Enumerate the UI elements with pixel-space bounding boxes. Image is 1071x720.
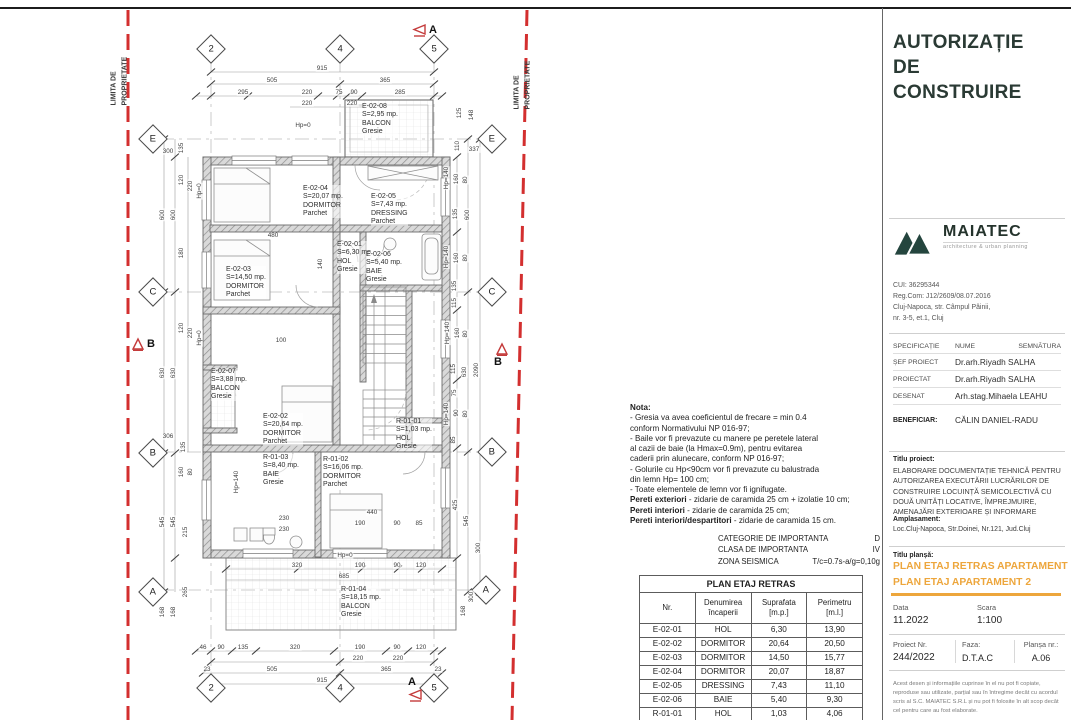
dimension-text: 168 [160, 606, 166, 619]
room-name: DORMITOR [303, 202, 343, 210]
importance-key: CATEGORIE DE IMPORTANTA [718, 533, 828, 544]
room-name: BALCON [341, 603, 381, 611]
room-id: R-01-02 [323, 456, 363, 464]
col-header-nr: Nr. [640, 593, 696, 624]
dimension-text: 220 [392, 656, 405, 662]
divider [889, 670, 1065, 671]
room-area: S=2,95 mp. [362, 111, 398, 119]
faza-value: D.T.A.C [962, 653, 1014, 663]
data-value: 11.2022 [893, 615, 977, 626]
cell-suprafata: 7,43 [751, 680, 807, 694]
titlu-proiect-text: ELABORARE DOCUMENTAȚIE TEHNICĂ PENTRU AU… [893, 466, 1061, 517]
room-finish: Gresie [263, 479, 299, 487]
wall-spec-line: Pereti interiori/despartitori - zidarie … [630, 516, 880, 526]
notes-title: Nota: [630, 403, 880, 413]
importance-value: D [874, 533, 880, 544]
property-line-label-left: LIMITA DE PROPRIETATE [110, 44, 131, 106]
dimension-text: 425 [453, 499, 459, 512]
table-row: E-02-05 DRESSING 7,43 11,10 [640, 680, 863, 694]
dimension-text: 2090 [474, 362, 480, 378]
dimension-text: 135 [237, 645, 250, 651]
permit-title: AUTORIZAȚIE DE CONSTRUIRE [893, 30, 1061, 105]
room-id: R-01-03 [263, 454, 299, 462]
dimension-text: 90 [392, 645, 401, 651]
grid-marker-label: E [150, 134, 156, 145]
room-id: R-01-04 [341, 586, 381, 594]
room-area: S=20,07 mp. [303, 193, 343, 201]
maiatec-logo-icon [893, 224, 935, 256]
section-arrow-icon [412, 23, 427, 37]
dimension-text: 545 [464, 515, 470, 528]
dimension-text: 90 [216, 645, 225, 651]
cell-suprafata: 20,07 [751, 666, 807, 680]
dimension-text: 160 [179, 466, 185, 479]
dimension-text: 85 [451, 435, 457, 444]
dimension-text: Hp=0 [294, 123, 311, 129]
dimension-text: Hp=140 [444, 245, 450, 269]
room-id: E-02-07 [211, 368, 247, 376]
cell-nr: E-02-03 [640, 652, 696, 666]
dimension-text: 545 [160, 516, 166, 529]
grid-marker-label: B [150, 448, 156, 459]
grid-marker-label: 2 [208, 682, 213, 693]
grid-marker-label: A [483, 585, 489, 596]
room-label: E-02-02 S=20,64 mp. DORMITOR Parchet [263, 413, 303, 446]
room-name: HOL [396, 435, 432, 443]
amplasament-label: Amplasament: [893, 516, 1061, 523]
section-arrow-icon [130, 337, 145, 351]
dimension-text: 100 [275, 338, 288, 344]
section-marker-b-right: B [494, 342, 509, 368]
dimension-text: 190 [354, 645, 367, 651]
dimension-text: 120 [179, 174, 185, 187]
dimension-text: 505 [266, 667, 279, 673]
room-area: S=3,88 mp. [211, 376, 247, 384]
room-name: DORMITOR [323, 473, 363, 481]
company-info: CUI: 36295344 Reg.Com: J12/2609/08.07.20… [893, 280, 1061, 324]
dimension-text: 365 [379, 78, 392, 84]
dimension-text: 630 [171, 367, 177, 380]
dimension-text: 168 [461, 605, 467, 618]
dimension-text: Hp=0 [197, 182, 203, 199]
proiect-label: Proiect Nr. [893, 640, 955, 649]
company-address-1: Cluj-Napoca, str. Câmpul Pâinii, [893, 302, 1061, 313]
cell-denumire: DORMITOR [695, 666, 751, 680]
spec-header-specificatie: SPECIFICAȚIE [893, 343, 955, 350]
wall-spec-line: Pereti interiori - zidarie de caramida 2… [630, 506, 880, 516]
room-finish: Gresie [396, 443, 432, 451]
dimension-text: 75 [334, 90, 343, 96]
room-id: E-02-03 [226, 266, 266, 274]
project-info-row: Proiect Nr. 244/2022 Faza: D.T.A.C Planș… [893, 640, 1061, 663]
dimension-text: 300 [476, 542, 482, 555]
table-row: E-02-01 HOL 6,30 13,90 [640, 624, 863, 638]
cell-suprafata: 1,03 [751, 708, 807, 720]
dimension-text: 685 [338, 574, 351, 580]
dimension-text: 285 [394, 90, 407, 96]
room-area: S=14,50 mp. [226, 274, 266, 282]
room-label: R-01-04 S=18,15 mp. BALCON Gresie [341, 586, 381, 619]
room-name: DRESSING [371, 210, 408, 218]
room-id: E-02-05 [371, 193, 408, 201]
drawing-sheet: LIMITA DE PROPRIETATE LIMITA DE PROPRIET… [0, 0, 1071, 720]
logo-tagline: architecture & urban planning [943, 242, 1028, 250]
dimension-text: 80 [188, 467, 194, 476]
note-line: - Golurile cu Hp<90cm vor fi prevazute c… [630, 465, 880, 475]
dimension-text: 90 [349, 90, 358, 96]
spec-table: SPECIFICAȚIE NUME SEMNĂTURA ȘEF PROIECT … [893, 340, 1061, 425]
plansa-nr-value: A.06 [1021, 653, 1061, 663]
dimension-text: 630 [462, 366, 468, 379]
company-address-2: nr. 3-5, et.1, Cluj [893, 313, 1061, 324]
section-arrow-icon [494, 342, 509, 356]
dimension-text: 125 [457, 107, 463, 120]
note-line: al cazii de baie (la Hmax=0.9m), pentru … [630, 444, 880, 454]
cell-nr: E-02-06 [640, 694, 696, 708]
table-row: E-02-06 BAIE 5,40 9,30 [640, 694, 863, 708]
room-finish: Parchet [263, 438, 303, 446]
dimension-text: 80 [463, 253, 469, 262]
dimension-text: 160 [454, 252, 460, 265]
dimension-text: 190 [354, 563, 367, 569]
note-line: caderii prin alunecare, conform NP 016-9… [630, 454, 880, 464]
dimension-text: 220 [301, 90, 314, 96]
importance-block: CATEGORIE DE IMPORTANTA D CLASA DE IMPOR… [718, 533, 880, 567]
divider [889, 634, 1065, 635]
spec-header-semnatura: SEMNĂTURA [1018, 343, 1061, 350]
room-name: DORMITOR [226, 283, 266, 291]
room-finish: Parchet [323, 481, 363, 489]
spec-row-sef-proiect: ȘEF PROIECT Dr.arh.Riyadh SALHA [893, 354, 1061, 371]
room-finish: Gresie [341, 611, 381, 619]
note-line: conform Normativului NP 016-97; [630, 424, 880, 434]
note-line: - Toate elementele de lemn vor fi ignifu… [630, 485, 880, 495]
cell-perimetru: 4,06 [807, 708, 863, 720]
beneficiar-row: BENEFICIAR: CĂLIN DANIEL-RADU [893, 405, 1061, 425]
room-id: E-02-01 [337, 241, 373, 249]
room-area: S=5,40 mp. [366, 259, 402, 267]
dimension-text: 300 [469, 591, 475, 604]
dimension-text: Hp=140 [444, 166, 450, 190]
dimension-text: 220 [301, 101, 314, 107]
cell-perimetru: 9,30 [807, 694, 863, 708]
table-row: R-01-01 HOL 1,03 4,06 [640, 708, 863, 720]
cell-denumire: HOL [695, 624, 751, 638]
grid-marker-label: 5 [431, 43, 436, 54]
dimension-text: 306 [162, 434, 175, 440]
dimension-text: 90 [392, 521, 401, 527]
dimension-text: 230 [278, 527, 291, 533]
dimension-text: 440 [366, 510, 379, 516]
dimension-text: 365 [380, 667, 393, 673]
dimension-text: 90 [392, 563, 401, 569]
beneficiar-label: BENEFICIAR: [893, 417, 955, 424]
dimension-text: 135 [179, 142, 185, 155]
dimension-text: 320 [291, 563, 304, 569]
plansa-title-1: PLAN ETAJ RETRAS APARTAMENT 1 [893, 561, 1061, 572]
divider [889, 218, 1065, 219]
spec-role: PROIECTAT [893, 376, 955, 383]
importance-row: CATEGORIE DE IMPORTANTA D [718, 533, 880, 544]
section-letter: B [494, 356, 502, 368]
cell-nr: E-02-04 [640, 666, 696, 680]
dimension-text: 135 [181, 441, 187, 454]
dimension-text: 148 [469, 109, 475, 122]
room-finish: Gresie [211, 393, 247, 401]
date-scale-row: Data 11.2022 Scara 1:100 [893, 603, 1061, 626]
room-label: E-02-08 S=2,95 mp. BALCON Gresie [362, 103, 398, 136]
dimension-text: 80 [463, 409, 469, 418]
room-label: R-01-01 S=1,03 mp. HOL Gresie [396, 418, 432, 451]
room-id: E-02-04 [303, 185, 343, 193]
dimension-text: Hp=140 [234, 470, 240, 494]
dimension-text: 600 [465, 209, 471, 222]
cell-perimetru: 11,10 [807, 680, 863, 694]
dimension-text: 630 [160, 367, 166, 380]
dimension-text: 135 [452, 280, 458, 293]
section-arrow-icon [408, 688, 423, 702]
dimension-text: 160 [454, 173, 460, 186]
dimension-text: 168 [171, 606, 177, 619]
divider [889, 451, 1065, 452]
wall-spec-detail: - zidarie de caramida 15 cm. [732, 516, 836, 525]
cell-suprafata: 6,30 [751, 624, 807, 638]
dimension-text: 140 [318, 258, 324, 271]
beneficiar-name: CĂLIN DANIEL-RADU [955, 415, 1038, 425]
importance-key: ZONA SEISMICA [718, 556, 779, 567]
note-line: din lemn Hp= 100 cm; [630, 475, 880, 485]
proiect-value: 244/2022 [893, 652, 955, 663]
wall-spec-line: Pereti exteriori - zidarie de caramida 2… [630, 495, 880, 505]
dimension-text: 230 [278, 516, 291, 522]
spec-role: DESENAT [893, 393, 955, 400]
grid-marker-label: B [489, 447, 495, 458]
dimension-text: 295 [237, 90, 250, 96]
dimension-text: 480 [267, 233, 280, 239]
col-header-perimetru: Perimetru [m.l.] [807, 593, 863, 624]
dimension-text: 220 [188, 180, 194, 193]
table-title: PLAN ETAJ RETRAS [640, 576, 863, 593]
cell-perimetru: 20,50 [807, 638, 863, 652]
room-area: S=1,03 mp. [396, 426, 432, 434]
dimension-text: 190 [354, 521, 367, 527]
dimension-text: 120 [179, 322, 185, 335]
cell-suprafata: 5,40 [751, 694, 807, 708]
room-area: S=20,64 mp. [263, 421, 303, 429]
copyright-disclaimer: Acest desen și informațiile cuprinse în … [893, 680, 1061, 716]
cell-perimetru: 15,77 [807, 652, 863, 666]
dimension-text: 75 [452, 388, 458, 397]
wall-spec-type: Pereti exteriori [630, 495, 687, 504]
dimension-text: Hp=140 [444, 402, 450, 426]
dimension-text: 215 [183, 526, 189, 539]
dimension-text: 265 [183, 586, 189, 599]
importance-row: ZONA SEISMICA T/c=0.7s-a/g=0,10g [718, 556, 880, 567]
spec-name: Arh.stag.Mihaela LEAHU [955, 391, 1047, 401]
grid-marker-label: 4 [337, 682, 342, 693]
dimension-text: 115 [452, 297, 458, 309]
cell-nr: E-02-02 [640, 638, 696, 652]
cell-perimetru: 13,90 [807, 624, 863, 638]
dimension-text: 600 [160, 209, 166, 222]
dimension-text: 115 [451, 363, 457, 375]
data-label: Data [893, 603, 977, 612]
importance-row: CLASA DE IMPORTANTA IV [718, 544, 880, 555]
room-id: E-02-08 [362, 103, 398, 111]
cell-nr: R-01-01 [640, 708, 696, 720]
room-finish: Gresie [362, 128, 398, 136]
room-finish: Parchet [303, 210, 343, 218]
room-id: R-01-01 [396, 418, 432, 426]
section-letter: B [147, 338, 155, 350]
room-id: E-02-06 [366, 251, 402, 259]
dimension-text: 23 [433, 667, 442, 673]
cell-denumire: DORMITOR [695, 638, 751, 652]
room-name: BAIE [263, 471, 299, 479]
note-line: - Gresia va avea coeficientul de frecare… [630, 413, 880, 423]
cell-nr: E-02-05 [640, 680, 696, 694]
table-row: E-02-03 DORMITOR 14,50 15,77 [640, 652, 863, 666]
room-schedule-table: PLAN ETAJ RETRAS Nr. Denumirea încaperii… [639, 575, 863, 720]
room-label: E-02-03 S=14,50 mp. DORMITOR Parchet [226, 266, 266, 299]
scara-value: 1:100 [977, 615, 1061, 626]
section-letter: A [429, 24, 437, 36]
faza-label: Faza: [962, 640, 1014, 649]
col-header-denumire: Denumirea încaperii [695, 593, 751, 624]
dimension-text: Hp=0 [336, 553, 353, 559]
plansa-title-2: PLAN ETAJ APARTAMENT 2 [893, 577, 1061, 588]
dimension-text: 80 [463, 329, 469, 338]
section-marker-a-top: A [412, 23, 437, 37]
importance-value: T/c=0.7s-a/g=0,10g [812, 556, 880, 567]
dimension-text: 300 [162, 149, 175, 155]
cell-denumire: DORMITOR [695, 652, 751, 666]
dimension-text: 337 [468, 147, 481, 153]
dimension-text: 135 [453, 208, 459, 221]
room-label: E-02-06 S=5,40 mp. BAIE Gresie [366, 251, 402, 284]
importance-key: CLASA DE IMPORTANTA [718, 544, 808, 555]
wall-specs: Pereti exteriori - zidarie de caramida 2… [630, 495, 880, 526]
room-area: S=16,06 mp. [323, 464, 363, 472]
dimension-text: Hp=0 [197, 329, 203, 346]
grid-marker-label: C [150, 287, 157, 298]
room-label: R-01-02 S=16,06 mp. DORMITOR Parchet [323, 456, 363, 489]
room-finish: Parchet [226, 291, 266, 299]
dimension-text: 220 [346, 101, 359, 107]
titlu-proiect-label: Titlu proiect: [893, 456, 1061, 463]
dimension-text: 600 [171, 209, 177, 222]
dimension-text: 120 [415, 563, 428, 569]
grid-marker-label: 4 [337, 43, 342, 54]
cell-denumire: HOL [695, 708, 751, 720]
dimension-text: 80 [463, 175, 469, 184]
spec-header-row: SPECIFICAȚIE NUME SEMNĂTURA [893, 340, 1061, 354]
notes-lines: - Gresia va avea coeficientul de frecare… [630, 413, 880, 495]
section-marker-a-bottom: A [408, 676, 423, 702]
table-row: E-02-02 DORMITOR 20,64 20,50 [640, 638, 863, 652]
logo-text: MAIATEC [943, 224, 1028, 240]
table-row: E-02-04 DORMITOR 20,07 18,87 [640, 666, 863, 680]
dimension-text: 110 [455, 140, 461, 152]
room-name: BAIE [366, 268, 402, 276]
room-name: BALCON [362, 120, 398, 128]
dimension-text: 320 [289, 645, 302, 651]
dimension-text: 505 [266, 78, 279, 84]
section-marker-b-left: B [130, 337, 155, 351]
dimension-text: 545 [171, 516, 177, 529]
company-logo: MAIATEC architecture & urban planning [893, 224, 1061, 256]
property-line-label-right: LIMITA DE PROPRIETATE [513, 48, 534, 110]
dimension-text: 220 [188, 327, 194, 340]
dimension-text: 220 [352, 656, 365, 662]
importance-value: IV [873, 544, 880, 555]
plansa-nr-label: Planșa nr.: [1021, 640, 1061, 649]
cell-denumire: BAIE [695, 694, 751, 708]
dimension-text: 120 [415, 645, 428, 651]
dimension-text: 85 [414, 521, 423, 527]
divider [889, 333, 1065, 334]
room-id: E-02-02 [263, 413, 303, 421]
room-name: DORMITOR [263, 430, 303, 438]
wall-spec-type: Pereti interiori/despartitori [630, 516, 732, 525]
cell-perimetru: 18,87 [807, 666, 863, 680]
wall-spec-type: Pereti interiori [630, 506, 685, 515]
cell-denumire: DRESSING [695, 680, 751, 694]
dimension-text: Hp=140 [445, 321, 451, 345]
grid-marker-label: E [489, 134, 495, 145]
room-area: S=8,40 mp. [263, 462, 299, 470]
dimension-text: 90 [454, 408, 460, 417]
wall-spec-detail: - zidarie de caramida 25 cm; [685, 506, 789, 515]
cell-nr: E-02-01 [640, 624, 696, 638]
company-regcom: Reg.Com: J12/2609/08.07.2016 [893, 291, 1061, 302]
company-cui: CUI: 36295344 [893, 280, 1061, 291]
room-label: R-01-03 S=8,40 mp. BAIE Gresie [263, 454, 299, 487]
dimension-text: 46 [198, 645, 207, 651]
title-block: AUTORIZAȚIE DE CONSTRUIRE MAIATEC archit… [883, 8, 1071, 720]
room-finish: Gresie [366, 276, 402, 284]
plansa-underline [891, 593, 1061, 596]
spec-row-proiectat: PROIECTAT Dr.arh.Riyadh SALHA [893, 371, 1061, 388]
amplasament-text: Loc.Cluj-Napoca, Str.Doinei, Nr.121, Jud… [893, 526, 1061, 533]
room-name: BALCON [211, 385, 247, 393]
dimension-text: 160 [455, 327, 461, 340]
spec-name: Dr.arh.Riyadh SALHA [955, 374, 1035, 384]
col-header-suprafata: Suprafata [m.p.] [751, 593, 807, 624]
grid-marker-label: 2 [208, 43, 213, 54]
divider [889, 546, 1065, 547]
scara-label: Scara [977, 603, 1061, 612]
room-label: E-02-04 S=20,07 mp. DORMITOR Parchet [303, 185, 343, 218]
cell-suprafata: 14,50 [751, 652, 807, 666]
dimension-text: 180 [179, 247, 185, 260]
spec-row-desenat: DESENAT Arh.stag.Mihaela LEAHU [893, 388, 1061, 405]
notes-block: Nota: - Gresia va avea coeficientul de f… [630, 403, 880, 567]
room-area: S=18,15 mp. [341, 594, 381, 602]
room-label: E-02-07 S=3,88 mp. BALCON Gresie [211, 368, 247, 401]
room-finish: Parchet [371, 218, 408, 226]
room-label: E-02-05 S=7,43 mp. DRESSING Parchet [371, 193, 408, 226]
room-area: S=7,43 mp. [371, 201, 408, 209]
grid-marker-label: 5 [431, 682, 436, 693]
spec-name: Dr.arh.Riyadh SALHA [955, 357, 1035, 367]
grid-marker-label: A [150, 587, 156, 598]
dimension-text: 915 [316, 678, 329, 684]
section-letter: A [408, 676, 416, 688]
titlu-plansa-label: Titlu planșă: [893, 552, 1061, 559]
spec-role: ȘEF PROIECT [893, 359, 955, 366]
note-line: - Baile vor fi prevazute cu manere pe pe… [630, 434, 880, 444]
